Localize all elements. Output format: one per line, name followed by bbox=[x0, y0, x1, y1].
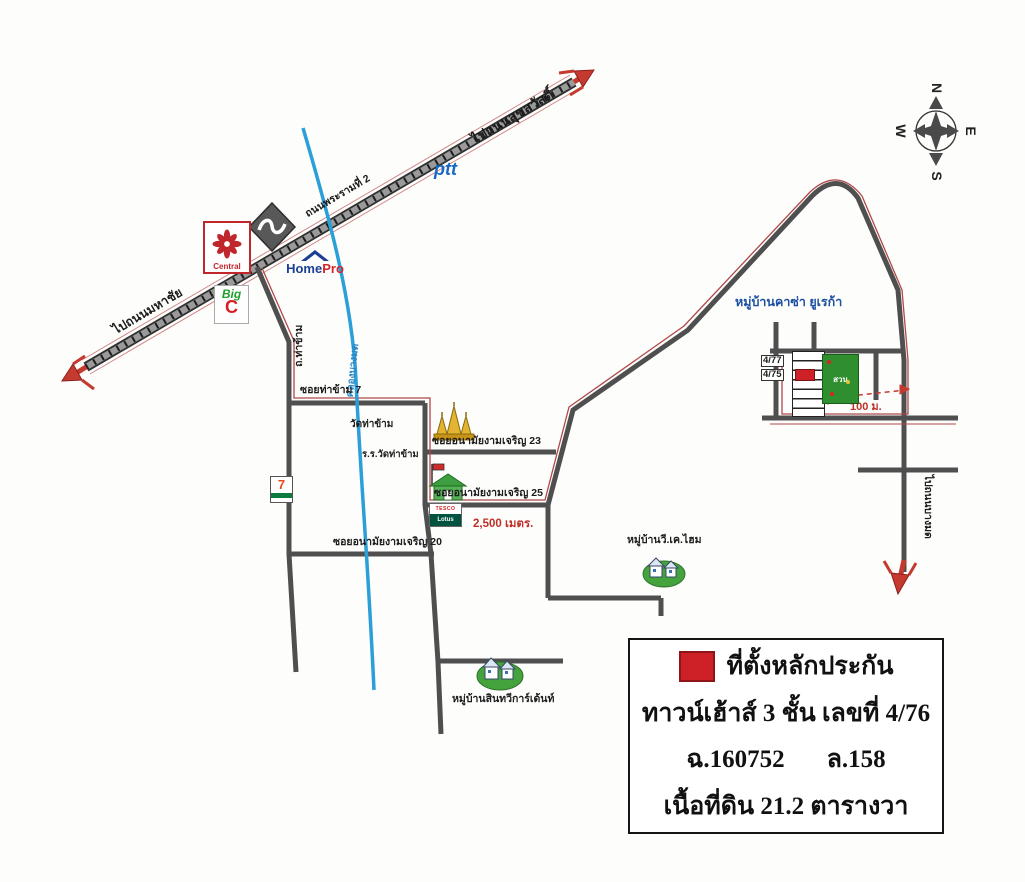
arrow-to-bang-mot bbox=[884, 560, 916, 594]
label-village-vk: หมู่บ้านวี.เค.ไฮม bbox=[627, 535, 702, 547]
homepro-roof-icon bbox=[301, 250, 329, 261]
seven-eleven-7-text: 7 bbox=[271, 477, 292, 493]
label-village-casa: หมู่บ้านคาซ่า ยูเรก้า bbox=[735, 296, 842, 310]
village-vk-icon bbox=[643, 558, 685, 587]
seven-eleven-logo: 7 bbox=[270, 476, 293, 503]
label-to-bang-mot: ไปถนนบางมด bbox=[921, 457, 933, 557]
garden-dot-red bbox=[827, 360, 831, 364]
label-soi-anamai-23: ซอยอนามัยงามเจริญ 23 bbox=[432, 436, 541, 448]
legend-box: ที่ตั้งหลักประกัน ทาวน์เฮ้าส์ 3 ชั้น เลข… bbox=[628, 638, 944, 834]
townhouse-row bbox=[792, 351, 825, 417]
road-tha-kham bbox=[257, 267, 296, 672]
garden-dot-yellow bbox=[846, 380, 850, 384]
ptt-logo: ptt bbox=[434, 159, 457, 180]
label-temple: วัดท่าข้าม bbox=[350, 419, 393, 430]
central-logo-text: Central bbox=[213, 262, 241, 271]
label-house-4-75: 4/75 bbox=[761, 369, 784, 381]
label-house-4-77: 4/77 bbox=[761, 355, 784, 367]
compass-arrow-east bbox=[947, 124, 959, 138]
legend-land-area: เนื้อที่ดิน 21.2 ตารางวา bbox=[664, 786, 909, 826]
tesco-text: TESCO bbox=[430, 504, 461, 514]
property-marker-4-76 bbox=[795, 369, 815, 381]
compass-label-s: S bbox=[929, 171, 945, 180]
bigc-c-text: C bbox=[215, 298, 248, 316]
central-logo: Central bbox=[203, 221, 251, 274]
compass-arrow-north bbox=[929, 96, 943, 109]
legend-deed-number: ฉ.160752 bbox=[686, 739, 784, 779]
label-soi-tha-kham-7: ซอยท่าข้าม 7 bbox=[300, 385, 361, 397]
compass-arrow-south bbox=[929, 153, 943, 166]
label-distance-2500m: 2,500 เมตร. bbox=[473, 518, 533, 531]
compass-rose: N E S W bbox=[893, 83, 979, 181]
garden-label: สวน bbox=[833, 373, 848, 386]
location-map: N E S W bbox=[0, 0, 1025, 882]
compass-arrow-west bbox=[913, 124, 925, 138]
compass-label-e: E bbox=[963, 126, 979, 135]
lotus-text: Lotus bbox=[430, 514, 461, 526]
label-tha-kham-road: ถ.ท่าข้าม bbox=[294, 305, 306, 387]
route-outline-highway-bottom bbox=[90, 89, 578, 374]
label-soi-anamai-25: ซอยอนามัยงามเจริญ 25 bbox=[434, 488, 543, 500]
legend-title: ที่ตั้งหลักประกัน bbox=[727, 646, 894, 686]
seven-eleven-green-bar bbox=[271, 493, 292, 498]
road-vk-branch bbox=[548, 505, 661, 616]
label-soi-anamai-20: ซอยอนามัยงามเจริญ 20 bbox=[333, 537, 442, 549]
compass-label-n: N bbox=[929, 83, 945, 93]
homepro-home-text: Home bbox=[286, 261, 322, 276]
garden-dot-red2 bbox=[830, 392, 834, 396]
bigc-logo: Big C bbox=[214, 285, 249, 324]
legend-lot-number: ล.158 bbox=[827, 739, 886, 779]
legend-line-building: ทาวน์เฮ้าส์ 3 ชั้น เลขที่ 4/76 bbox=[642, 693, 930, 733]
label-school: ร.ร.วัดท่าข้าม bbox=[362, 450, 419, 460]
homepro-pro-text: Pro bbox=[322, 261, 344, 276]
compass-label-w: W bbox=[893, 124, 909, 138]
label-village-sinthawee: หมู่บ้านสินทวีการ์เด้นท์ bbox=[452, 694, 554, 706]
legend-marker-swatch bbox=[679, 651, 715, 682]
central-flower-icon bbox=[207, 228, 247, 262]
homepro-logo: HomePro bbox=[279, 250, 351, 276]
tesco-lotus-logo: TESCO Lotus bbox=[429, 503, 462, 527]
